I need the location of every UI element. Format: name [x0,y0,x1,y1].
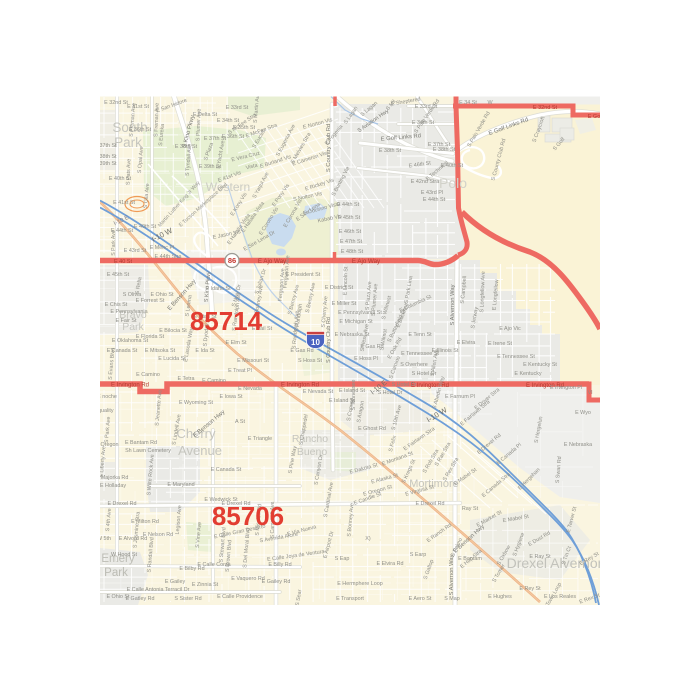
svg-text:E 43rd Pl: E 43rd Pl [421,190,443,196]
svg-text:E Michigan St: E Michigan St [339,319,373,325]
svg-text:E Lucida St: E Lucida St [158,356,186,362]
svg-text:E Ohio St: E Ohio St [150,292,174,298]
svg-text:E Vaquero Rd: E Vaquero Rd [231,576,264,582]
svg-text:E 44th Stra: E 44th Stra [155,254,182,260]
svg-text:S Map: S Map [444,596,460,602]
svg-text:S Hoss St: S Hoss St [298,358,322,364]
svg-text:E 40 St: E 40 St [114,259,133,265]
svg-text:S Hotel Dr: S Hotel Dr [392,382,417,388]
svg-text:E Calle Providence: E Calle Providence [217,594,263,600]
svg-text:E Gailey Rd: E Gailey Rd [262,579,291,585]
svg-text:E 34th St: E 34th St [217,118,240,124]
svg-text:E 32nd St: E 32nd St [104,100,128,106]
svg-text:E Tetra: E Tetra [178,376,195,382]
svg-text:E Tenn St: E Tenn St [408,332,432,338]
svg-text:E Drexel Rd: E Drexel Rd [107,501,136,507]
svg-text:S Alvernon Way: S Alvernon Way [450,284,456,325]
svg-text:E Camino: E Camino [202,378,226,384]
svg-text:S Country Club Rd: S Country Club Rd [326,124,332,172]
svg-text:E 41st St: E 41st St [113,200,135,206]
svg-text:E 48th St: E 48th St [341,249,364,255]
svg-text:E Forrest St: E Forrest St [136,298,165,304]
svg-text:A St: A St [235,419,245,425]
svg-text:S Hotel Dr: S Hotel Dr [412,371,437,377]
svg-text:E Ajo Way: E Ajo Way [258,258,287,265]
svg-text:E 40th St: E 40th St [109,176,132,182]
svg-text:S Earp: S Earp [410,552,426,558]
svg-text:E 47th St: E 47th St [340,239,363,245]
svg-text:E Triangle: E Triangle [248,436,272,442]
svg-text:E Ajo Way: E Ajo Way [352,258,381,265]
svg-text:E Fair St: E Fair St [116,318,137,324]
svg-text:E Irene St: E Irene St [488,341,512,347]
svg-text:39th St: 39th St [99,161,117,167]
svg-text:E Miller St: E Miller St [332,301,357,307]
svg-text:86: 86 [228,256,236,265]
svg-text:E Aero St: E Aero St [409,596,432,602]
svg-text:E 40th St: E 40th St [134,224,157,230]
svg-text:E Hoss Pl: E Hoss Pl [354,356,378,362]
svg-text:E Island St: E Island St [339,388,366,394]
svg-text:E Maryland: E Maryland [167,482,194,488]
svg-text:E Nebraska St: E Nebraska St [335,332,370,338]
svg-text:E Kentucky: E Kentucky [514,371,542,377]
svg-text:10: 10 [311,338,320,347]
svg-text:E Ray St: E Ray St [529,554,551,560]
svg-text:S Sister Rd: S Sister Rd [174,596,201,602]
svg-text:E 33rd St: E 33rd St [226,105,249,111]
svg-text:E Mehc Pl: E Mehc Pl [150,245,175,251]
svg-text:E Iowa St: E Iowa St [219,394,243,400]
svg-text:E Wyoming St: E Wyoming St [179,400,214,406]
svg-text:E Rey St: E Rey St [519,586,541,592]
svg-text:E Nelson Rd: E Nelson Rd [143,532,173,538]
svg-text:E Billy Rd: E Billy Rd [268,562,291,568]
svg-text:Rancho: Rancho [292,433,328,445]
svg-text:E Chis St: E Chis St [105,302,128,308]
svg-text:E Idaho St: E Idaho St [205,286,231,292]
svg-text:E 31st St: E 31st St [127,104,149,110]
svg-text:E Calle Antonia Terracil Dr: E Calle Antonia Terracil Dr [127,587,190,593]
svg-text:E Elvira Rd: E Elvira Rd [377,561,404,567]
svg-text:E Nevada St: E Nevada St [303,389,334,395]
svg-text:E Gas Rd: E Gas Rd [290,348,313,354]
svg-text:E Pennsylvania: E Pennsylvania [110,309,147,315]
svg-text:37th St: 37th St [99,143,117,149]
svg-text:E 45th St: E 45th St [107,272,130,278]
svg-text:E District St: E District St [325,285,354,291]
svg-text:E Mitsoka St: E Mitsoka St [145,348,176,354]
svg-text:S Overhere: S Overhere [400,362,428,368]
svg-text:E Wyo: E Wyo [575,410,591,416]
svg-text:E Lincoln St: E Lincoln St [343,266,350,295]
svg-text:85714: 85714 [190,306,263,336]
svg-text:E 38th St: E 38th St [175,144,198,150]
svg-text:E 34 St: E 34 St [459,100,477,106]
svg-text:Avenue: Avenue [178,443,222,458]
svg-text:Sh Lawn Cemetery: Sh Lawn Cemetery [125,448,171,454]
svg-text:E Drexel Rd: E Drexel Rd [415,501,444,507]
svg-text:X): X) [365,536,371,542]
svg-text:E 44th St: E 44th St [423,197,446,203]
svg-text:Vl: Vl [588,390,593,396]
svg-text:E 39th St: E 39th St [199,164,222,170]
svg-text:E Nebraska: E Nebraska [564,442,592,448]
svg-text:E Camino: E Camino [136,372,160,378]
svg-text:E President St: E President St [286,272,321,278]
svg-text:E 44th St: E 44th St [111,228,134,234]
svg-text:E Irvington Rd: E Irvington Rd [111,383,149,389]
svg-text:E 42nd Stra: E 42nd Stra [411,179,439,185]
svg-text:E 38th St: E 38th St [379,148,402,154]
svg-text:E Nevada: E Nevada [238,386,262,392]
svg-text:W Hood St: W Hood St [111,552,138,558]
svg-text:E Missouri St: E Missouri St [237,358,269,364]
svg-text:E 46th St: E 46th St [339,229,362,235]
svg-text:E Ida St: E Ida St [195,348,215,354]
svg-text:E Hermphere Loop: E Hermphere Loop [337,581,383,587]
svg-text:E Holladay: E Holladay [100,483,126,489]
svg-text:E Treat Pl: E Treat Pl [228,368,252,374]
svg-text:E 38th St: E 38th St [433,147,456,153]
svg-text:E Florida St: E Florida St [136,334,165,340]
svg-text:E 32nd St: E 32nd St [533,105,558,111]
svg-text:E Gatley Rd: E Gatley Rd [125,596,154,602]
svg-text:E noche: E noche [97,394,117,400]
svg-text:E Elm St: E Elm St [226,340,247,346]
svg-text:S Eap: S Eap [335,556,350,562]
svg-text:E 43rd St: E 43rd St [124,248,147,254]
svg-text:E Ghost Rd: E Ghost Rd [358,426,386,432]
svg-text:Park: Park [104,567,128,579]
svg-text:38th St: 38th St [99,154,117,160]
svg-text:E Zinnia St: E Zinnia St [192,582,219,588]
svg-text:E Canada St: E Canada St [107,348,138,354]
svg-text:E Kentucky St: E Kentucky St [523,362,557,368]
svg-text:E Gailey: E Gailey [165,579,186,585]
svg-text:E Delta St: E Delta St [193,112,218,118]
svg-text:S Hotel Dr: S Hotel Dr [378,390,403,396]
svg-text:E 37th St: E 37th St [204,136,227,142]
svg-text:E Bilby Rd: E Bilby Rd [179,566,204,572]
svg-text:E Transport: E Transport [336,596,364,602]
svg-text:Ray St: Ray St [462,506,479,512]
svg-text:E Bantam Rd: E Bantam Rd [125,440,157,446]
svg-text:E Farnum Pl: E Farnum Pl [445,394,475,400]
svg-text:85706: 85706 [212,501,284,531]
svg-text:E Canada St: E Canada St [211,467,242,473]
svg-text:E Irvington Rd: E Irvington Rd [281,383,319,389]
svg-text:E Illinois St: E Illinois St [432,348,459,354]
svg-text:E Ajo Vic: E Ajo Vic [499,326,521,332]
svg-text:E Tennessee St: E Tennessee St [497,354,535,360]
svg-text:E Hughes: E Hughes [488,594,512,600]
svg-text:S Alvernon Way: S Alvernon Way [449,554,455,595]
svg-text:E Elvira: E Elvira [457,340,476,346]
svg-text:Polo: Polo [439,175,467,191]
svg-text:E Irvington Pl: E Irvington Pl [550,385,582,391]
svg-text:E Los Reales: E Los Reales [544,594,576,600]
svg-text:E Go: E Go [588,114,601,120]
